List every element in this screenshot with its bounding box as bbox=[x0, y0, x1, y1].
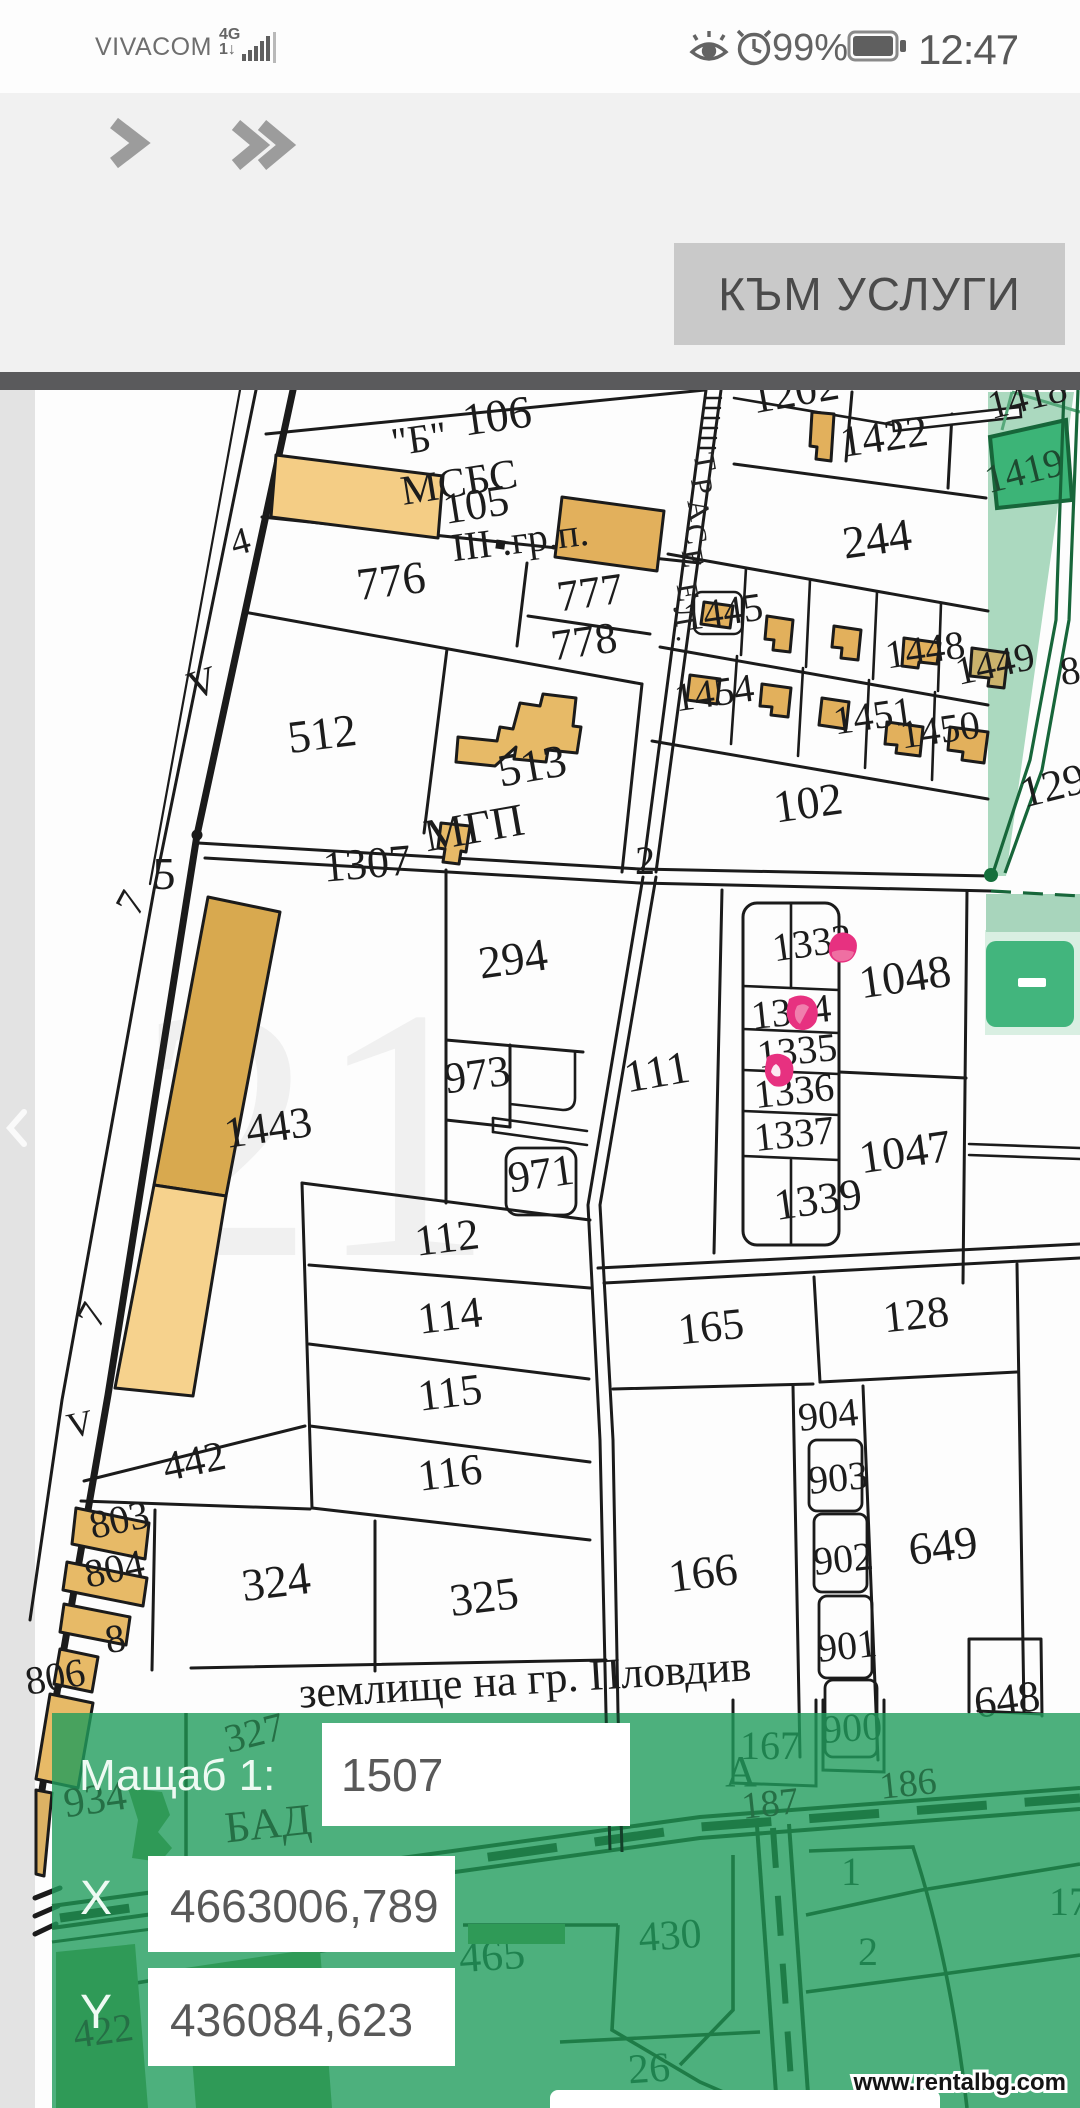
svg-text:Мащаб 1:: Мащаб 1: bbox=[79, 1751, 275, 1800]
svg-text:166: 166 bbox=[666, 1543, 741, 1602]
svg-text:1507: 1507 bbox=[341, 1749, 443, 1801]
svg-text:116: 116 bbox=[415, 1444, 485, 1500]
svg-text:649: 649 bbox=[906, 1516, 981, 1575]
svg-text:2: 2 bbox=[635, 838, 655, 883]
svg-text:102: 102 bbox=[770, 772, 845, 832]
svg-text:114: 114 bbox=[415, 1287, 485, 1343]
svg-text:5: 5 bbox=[153, 848, 176, 899]
svg-text:1337: 1337 bbox=[752, 1107, 836, 1160]
svg-text:973: 973 bbox=[441, 1046, 513, 1104]
svg-text:187: 187 bbox=[740, 1780, 801, 1828]
svg-text:165: 165 bbox=[676, 1299, 747, 1355]
svg-text:1307: 1307 bbox=[321, 835, 413, 891]
svg-text:"Б": "Б" bbox=[388, 412, 449, 464]
svg-text:X: X bbox=[80, 1872, 112, 1925]
svg-text:777: 777 bbox=[554, 564, 626, 622]
svg-text:294: 294 bbox=[475, 928, 550, 988]
svg-text:128: 128 bbox=[881, 1287, 952, 1343]
svg-text:902: 902 bbox=[811, 1533, 875, 1584]
svg-text:901: 901 bbox=[815, 1620, 879, 1671]
svg-text:186: 186 bbox=[878, 1760, 939, 1808]
svg-text:Y: Y bbox=[80, 1986, 112, 2039]
svg-text:904: 904 bbox=[796, 1389, 860, 1440]
svg-text:106: 106 bbox=[459, 390, 534, 446]
svg-text:БАД: БАД bbox=[222, 1795, 313, 1853]
svg-text:971: 971 bbox=[505, 1145, 577, 1203]
svg-text:324: 324 bbox=[239, 1552, 314, 1611]
svg-text:244: 244 bbox=[839, 508, 914, 568]
svg-text:4663006,789: 4663006,789 bbox=[170, 1880, 439, 1932]
svg-text:776: 776 bbox=[354, 551, 429, 610]
svg-text:325: 325 bbox=[447, 1567, 522, 1626]
svg-text:115: 115 bbox=[415, 1364, 485, 1420]
svg-text:www.rentalbg.com: www.rentalbg.com bbox=[853, 2069, 1066, 2096]
svg-text:778: 778 bbox=[548, 613, 620, 671]
svg-text:903: 903 bbox=[806, 1452, 870, 1503]
svg-text:512: 512 bbox=[285, 704, 360, 763]
svg-text:112: 112 bbox=[412, 1209, 482, 1265]
svg-text:436084,623: 436084,623 bbox=[170, 1994, 413, 2046]
